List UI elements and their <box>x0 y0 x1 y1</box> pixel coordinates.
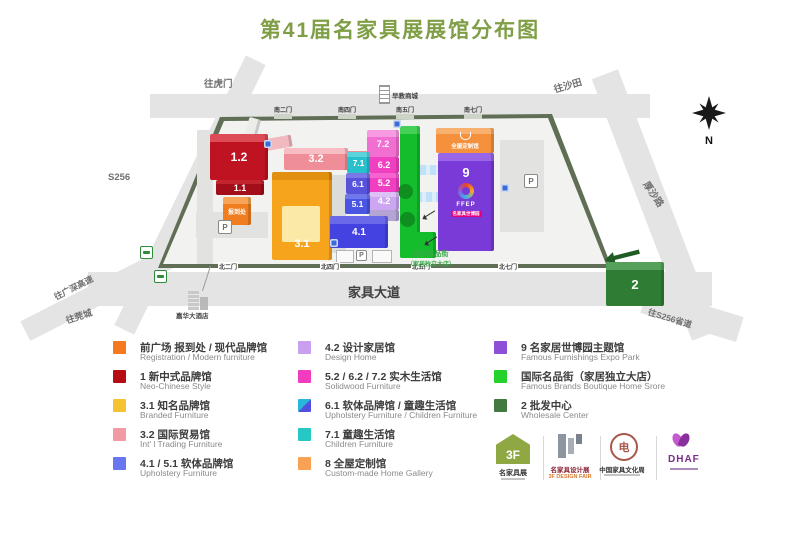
shape <box>576 434 582 444</box>
legend-swatch <box>113 399 126 412</box>
design-fair-logo <box>558 434 582 460</box>
legend-label-en: Branded Furniture <box>140 410 209 420</box>
micro-text-bar <box>501 478 525 480</box>
gate-segment <box>396 114 414 119</box>
road-label: 家具大道 <box>348 282 400 301</box>
building-label: 3.2 <box>308 153 323 165</box>
building-label: 报到处 <box>228 207 246 216</box>
taxi-icon <box>140 246 153 259</box>
gate-segment <box>274 114 292 119</box>
shape <box>558 434 566 458</box>
footbridge-icon <box>379 85 390 104</box>
legend-label-en: Custom-made Home Gallery <box>325 468 433 478</box>
roof-hall-3-1 <box>282 206 320 242</box>
gate-label: 南二门 <box>274 105 292 114</box>
gate-label: 南四门 <box>338 105 356 114</box>
legend-label-en: Upholstery Furniture / Children Furnitur… <box>325 410 477 420</box>
gate-label: 南七门 <box>464 105 482 114</box>
hall8-logo-icon <box>460 132 471 140</box>
road-label: S256 <box>108 172 130 183</box>
design-fair-caption-zh: 名家具设计展 <box>546 464 594 474</box>
legend-label-en: Registration / Modern furniture <box>140 352 255 362</box>
facility-icon <box>330 239 338 247</box>
building-label: 6.1 <box>352 179 364 189</box>
hall9-subtitle: 名家具世博园 <box>451 211 482 217</box>
legend-swatch <box>494 341 507 354</box>
hall9-number: 9 <box>462 165 469 180</box>
building-hall-5-2: 5.2 <box>369 173 399 192</box>
building-label: 1.1 <box>234 183 247 193</box>
dhaf-caption: DHAF <box>668 454 700 465</box>
building-label: 6.2 <box>378 160 391 170</box>
road-label: 往沙田 <box>552 74 583 95</box>
gate-segment <box>338 114 356 119</box>
facility-icon <box>501 184 509 192</box>
page-title: 第41届名家具展展馆分布图 <box>0 14 800 44</box>
legend-swatch <box>298 399 311 412</box>
building-hall-6-2: 6.2 <box>369 157 399 173</box>
legend-label-en: Famous Brands Boutique Home Srore <box>521 381 665 391</box>
legend-swatch <box>298 428 311 441</box>
legend-label-en: Neo-Chinese Style <box>140 381 211 391</box>
partner-logos: 3F 名家具展 名家具设计展 3F DESIGN FAIR 电 中国家具文化周 … <box>488 430 716 488</box>
legend-label-en: Children Furniture <box>325 439 393 449</box>
exhibition-map-page: 第41届名家具展展馆分布图 3.21.21.1报到处3.17.26.25.24.… <box>0 0 800 548</box>
building-hall-4-1: 4.1 <box>330 216 388 248</box>
logo-divider <box>543 436 544 480</box>
road-label: 嘉华大酒店 <box>176 310 209 320</box>
parking-icon: P <box>356 250 367 261</box>
building-label: 1.2 <box>231 150 248 164</box>
service-box <box>372 250 392 263</box>
building-label: 4.2 <box>378 196 391 206</box>
street-callout-line1: 国际名品街 <box>398 249 464 259</box>
legend-swatch <box>298 370 311 383</box>
building-green-bump-2 <box>400 212 415 227</box>
3f-fair-logo: 3F <box>496 434 530 464</box>
building-green-bump-1 <box>398 184 413 199</box>
parking-icon: P <box>524 174 538 188</box>
facility-icon <box>393 120 401 128</box>
building-hall-1-2: 1.2 <box>210 134 268 180</box>
legend-swatch <box>494 370 507 383</box>
legend-swatch <box>113 428 126 441</box>
legend-swatch <box>298 457 311 470</box>
building-label: 4.1 <box>352 227 366 238</box>
legend-swatch <box>113 341 126 354</box>
building-hall-4-2: 4.2 <box>369 192 399 210</box>
shape <box>692 96 726 130</box>
building-hall-7-1: 7.1 <box>347 152 370 173</box>
building-label: 全屋定制馆 <box>451 142 479 150</box>
legend-label-en: Int' l Trading Furniture <box>140 439 222 449</box>
legend-swatch <box>494 399 507 412</box>
legend-swatch <box>113 370 126 383</box>
gate-segment <box>464 114 482 119</box>
legend-label-en: Famous Furnishings Expo Park <box>521 352 640 362</box>
gate-label: 北七门 <box>498 262 518 271</box>
legend-label-en: Solidwood Furniture <box>325 381 401 391</box>
logo-divider <box>656 436 657 480</box>
building-label: 5.1 <box>352 199 364 209</box>
building-hall-7-2: 7.2 <box>367 130 399 157</box>
legend-label-en: Design Home <box>325 352 377 362</box>
culture-week-logo: 电 <box>610 433 638 461</box>
dhaf-logo <box>670 432 692 450</box>
shape <box>568 438 574 454</box>
legend-label-en: Wholesale Center <box>521 410 589 420</box>
compass-north-label: N <box>692 135 726 147</box>
building-hall-3-2: 3.2 <box>284 148 348 170</box>
hotel-icon <box>188 291 199 310</box>
road-label: 早教商城 <box>392 90 418 100</box>
building-hall-5-1: 5.1 <box>345 194 370 214</box>
building-hall-1-1: 1.1 <box>216 180 264 195</box>
taxi-icon <box>154 270 167 283</box>
building-label: 2 <box>631 277 638 292</box>
micro-text-bar <box>604 474 640 476</box>
gate-label: 南五门 <box>396 105 414 114</box>
legend-swatch <box>113 457 126 470</box>
compass-star <box>692 96 726 130</box>
legend-label-en: Upholstery Furniture <box>140 468 217 478</box>
hotel-icon <box>200 297 208 310</box>
parking-icon: P <box>218 220 232 234</box>
building-label: 7.2 <box>377 139 390 149</box>
ffep-logo-text: FFEP <box>456 202 475 208</box>
street-callout: 国际名品街 （家居独立大店） <box>398 249 464 268</box>
building-hall-2: 2 <box>606 262 664 306</box>
facility-icon <box>264 140 272 148</box>
street-callout-line2: （家居独立大店） <box>398 259 464 268</box>
culture-week-caption: 中国家具文化周 <box>596 464 648 474</box>
legend-swatch <box>298 341 311 354</box>
building-hall-3-1: 3.1 <box>272 172 332 260</box>
building-label: 7.1 <box>353 158 365 168</box>
compass-icon: N <box>692 96 726 147</box>
road-label: 往虎门 <box>204 76 233 90</box>
building-hall-9: 9FFEP名家具世博园 <box>438 153 494 251</box>
3f-fair-caption: 名家具展 <box>490 468 536 478</box>
ffep-ring-icon <box>458 183 474 199</box>
gate-label: 北四门 <box>320 262 340 271</box>
design-fair-caption-en: 3F DESIGN FAIR <box>546 474 594 480</box>
building-hall-6-1: 6.1 <box>346 173 370 194</box>
building-hall-8: 全屋定制馆 <box>436 128 494 153</box>
gate-label: 北二门 <box>218 262 238 271</box>
micro-text-bar <box>670 468 698 470</box>
building-label: 5.2 <box>378 178 391 188</box>
building-label: 3.1 <box>294 238 309 250</box>
